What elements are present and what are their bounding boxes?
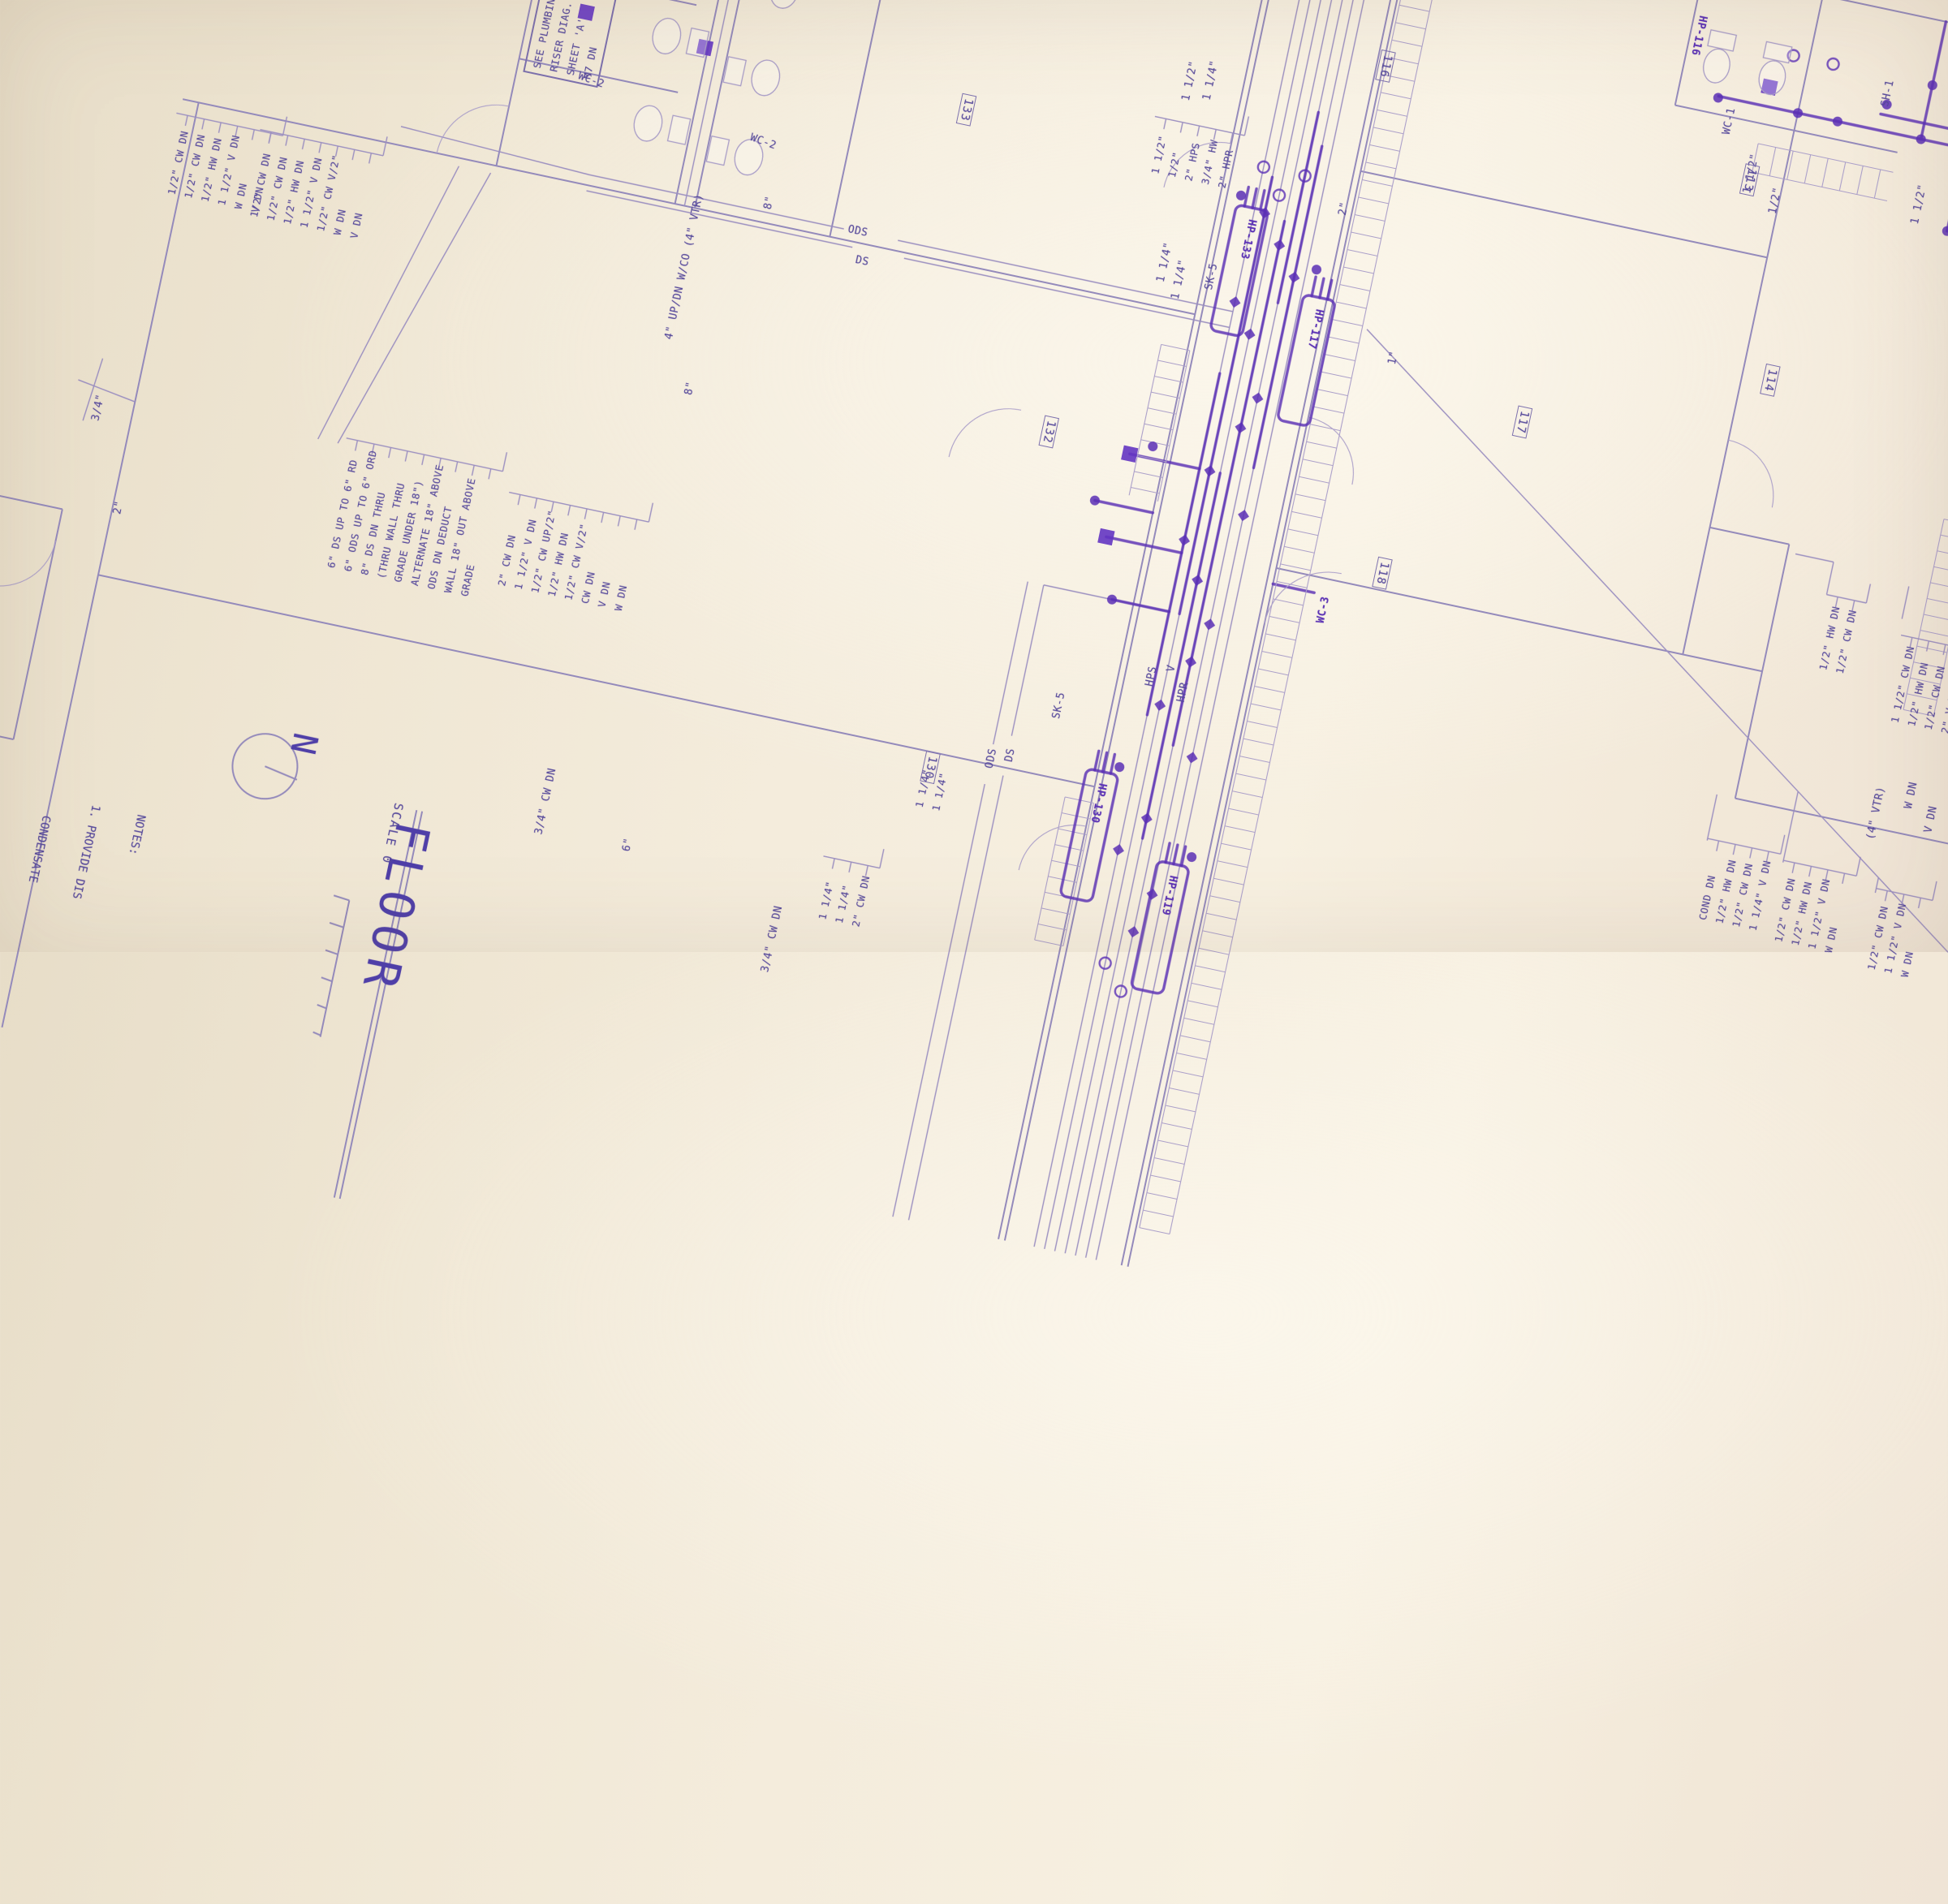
hatch-rail (1157, 351, 1190, 502)
pipe-label: HPR (1175, 681, 1192, 704)
wall-line (1276, 568, 1762, 671)
hatch-rung (1166, 1105, 1196, 1112)
fitting-dot-icon (1089, 495, 1101, 506)
pipe-label: 3/4" (90, 393, 108, 422)
hp-unit-label: HP-119 (1159, 874, 1179, 916)
valve-icon (1179, 535, 1190, 546)
valve-icon (1259, 207, 1270, 218)
valve-icon (1244, 329, 1256, 340)
leader-comb (1877, 889, 1933, 901)
hatch-rung (1206, 913, 1236, 920)
wall-line (14, 509, 62, 739)
wall-line (1735, 545, 1790, 799)
hatch-rung (1359, 197, 1389, 204)
hatch-rung (1140, 1228, 1170, 1234)
valve-icon (1252, 393, 1264, 404)
leader-tick (849, 862, 851, 872)
fitting-dot-icon (1832, 116, 1843, 127)
hatch-rung (1151, 1175, 1181, 1182)
hatch-rung (1924, 614, 1948, 621)
plan-linework (0, 0, 1948, 1904)
fitting-dot-icon (1713, 92, 1724, 103)
wall-line (98, 575, 1095, 786)
hatch-rung (1347, 250, 1377, 256)
hatch-rung (1343, 267, 1373, 274)
leader-line (1244, 116, 1248, 135)
wall-line (1675, 106, 1898, 153)
hatch-rung (1134, 472, 1162, 477)
pipe-label: 8" (683, 381, 697, 396)
hatch-rung (1144, 424, 1173, 429)
riser-icon (1098, 956, 1112, 970)
hatch-rung (1199, 948, 1229, 954)
blueprint-photo: { "title_block": { "title": "FLOOR", "sc… (0, 0, 1948, 952)
fitting-dot-icon (1927, 80, 1938, 91)
riser-icon (1273, 188, 1286, 202)
hatch-rung (1131, 487, 1159, 493)
hatch-rung (1173, 1070, 1203, 1077)
marker-pipe (1173, 222, 1284, 746)
leader-comb (1826, 595, 1866, 603)
hatch-rung (1310, 424, 1340, 431)
fitting-dot-icon (1942, 226, 1948, 237)
marker-pipe (1278, 112, 1318, 303)
door-swing-arc (1019, 815, 1086, 882)
pipe-label: (4" VTR) (1864, 786, 1888, 841)
fitting-dot-icon (1186, 851, 1197, 863)
pipe-label: WC-1 (1721, 106, 1739, 136)
pipe-label: SK-5 (1050, 691, 1068, 720)
pipe-label: 1" (1386, 350, 1401, 365)
hatch-rung (1941, 535, 1948, 541)
marker-pipe (1130, 454, 1200, 468)
water-closet-icon (1756, 58, 1788, 97)
pipe-label: 2" (111, 500, 126, 515)
pipe-label-stack-R1: 1/2" HW DN1/2" CW DN (1814, 605, 1861, 675)
pipe-line (1795, 554, 1834, 562)
fitting-dot-icon (1311, 264, 1322, 275)
valve-icon (1192, 575, 1203, 586)
leader-line (282, 117, 287, 136)
general-notes: NOTES: 1. PROVIDE DIS CONDENSATE (0, 787, 179, 916)
pipe-label: 1/2" (1767, 186, 1785, 215)
marker-pipe (1881, 114, 1948, 191)
pipe-line (1783, 792, 1799, 863)
marker-pipe (1254, 146, 1322, 467)
wall-line (675, 0, 782, 204)
hatch-rung (1169, 1088, 1199, 1094)
hatch-rung (1251, 704, 1281, 710)
riser-icon (1298, 169, 1312, 183)
pipe-line (1875, 878, 1878, 894)
valve-icon (1187, 752, 1198, 764)
wall-line (1127, 0, 1451, 1267)
water-closet-icon (723, 57, 746, 86)
hp-unit-feed (1252, 189, 1256, 208)
hatch-rung (1258, 669, 1288, 675)
pipe-line (684, 0, 791, 206)
hp-unit-feed (1110, 755, 1114, 773)
leader-comb (823, 856, 879, 868)
pipe-line (893, 784, 985, 1217)
pipe-line (399, 127, 592, 175)
room-tag-133: 133 (956, 93, 977, 127)
pipe-label: V DN (1922, 805, 1940, 834)
pipe-line (587, 191, 853, 248)
hatch-rung (1151, 392, 1179, 398)
notes-line: 1. PROVIDE DIS (68, 803, 103, 900)
hatch-rung (1177, 1053, 1207, 1059)
hatch-rung (1874, 170, 1880, 198)
pipe-label-stack-BR2: 1/2" CW DN1/2" HW DN1 1/2" V DNW DN (1769, 870, 1851, 954)
leader-line (502, 452, 506, 471)
pipe-label: 1 1/2" (1909, 183, 1929, 226)
floor-drain-icon (1761, 79, 1778, 96)
leader-line (880, 849, 884, 868)
hatch-rung (1787, 151, 1793, 179)
titleblock-line (334, 895, 350, 900)
hp-unit-feed (1312, 277, 1316, 295)
pipe-label-stack-NB: SEE PLUMBINGRISER DIAG.SHEET 'A'M7 DN (523, 0, 616, 88)
floor-drain-icon (1097, 528, 1114, 545)
pipe-label: HPS (1144, 666, 1160, 688)
hatch-rung (1291, 511, 1321, 518)
hatch-rung (1321, 372, 1351, 378)
pipe-label: SK-5 (1203, 262, 1221, 291)
corridor-pipe (1086, 0, 1410, 1258)
pipe-label: V (1165, 664, 1178, 673)
door-swing-arc (437, 93, 509, 166)
hatch-rung (1299, 476, 1329, 483)
pipe-label: 8" (762, 195, 777, 210)
hatch-rung (1243, 739, 1274, 745)
hp-unit (1277, 295, 1335, 427)
valve-icon (1128, 926, 1140, 937)
water-closet-icon (706, 136, 729, 166)
fitting-dot-icon (1147, 441, 1158, 452)
titleblock-line (330, 923, 344, 928)
room-tag-132: 132 (1038, 416, 1059, 449)
wall-line (998, 0, 1322, 1239)
water-closet-icon (668, 115, 691, 144)
pipe-line (590, 174, 844, 229)
hatch-rung (1210, 896, 1240, 902)
water-closet-icon (631, 103, 665, 144)
leader-line (1856, 857, 1860, 876)
hatch-rung (1839, 162, 1845, 191)
pipe-label: 1 1/4" (1155, 241, 1175, 283)
hatch-rung (1307, 442, 1337, 448)
pipe-line (1011, 585, 1044, 736)
hatch-rung (1314, 407, 1344, 413)
leader-tick (1213, 129, 1216, 140)
hatch-rung (1045, 892, 1073, 898)
hp-unit-feed (1166, 843, 1170, 862)
floor-drain-icon (1121, 446, 1138, 463)
hatch-rung (1392, 40, 1422, 46)
titleblock-line (317, 1005, 326, 1008)
hatch-rung (1373, 127, 1403, 134)
valve-icon (1289, 272, 1300, 283)
floor-plan-sheet: FLOOR SCALE 0 N NOTES: 1. PROVIDE DIS CO… (0, 0, 1948, 1144)
wall-line (695, 0, 802, 208)
hatch-rung (1284, 546, 1314, 553)
water-closet-icon (767, 0, 801, 11)
hatch-rung (1381, 93, 1411, 99)
room-tag-114: 114 (1760, 364, 1781, 397)
pipe-label-stack-M1: 6" DS UP TO 6" RD6" ODS UP TO 6" ORD8" D… (322, 445, 498, 597)
hatch-rail (1063, 803, 1093, 946)
wall-line (1122, 0, 1446, 1265)
hatch-rung (1158, 1140, 1188, 1147)
hatch-rung (1062, 813, 1090, 819)
hatch-rung (1187, 1001, 1217, 1007)
riser-icon (1257, 161, 1271, 174)
hatch-rung (1265, 634, 1295, 640)
hp-unit-feed (1174, 845, 1178, 864)
pipe-label-stack-M2: 2" CW DN1 1/2" V DN1/2" CW UP/2"1/2" HW … (493, 502, 644, 613)
pipe-label-stack-BR1: COND DN1/2" HW DN1/2" CW DN1 1/4" V DN (1694, 848, 1776, 933)
wall-line (1005, 0, 1329, 1240)
hatch-rung (1239, 756, 1269, 763)
hatch-rung (1157, 360, 1186, 366)
door-swing-arc (0, 529, 56, 597)
hatch-rail (1129, 344, 1161, 495)
fitting-dot-icon (1235, 190, 1247, 201)
pipe-label: HP-116 (1688, 15, 1709, 57)
hp-unit-feed (1244, 187, 1248, 206)
room-tag-116: 116 (1375, 50, 1396, 83)
hatch-rung (1161, 344, 1190, 350)
water-closet-icon (649, 15, 683, 56)
hatch-rail (1140, 0, 1418, 1228)
hatch-rung (1930, 583, 1948, 589)
marker-pipe (1921, 22, 1946, 140)
floor-drain-icon (696, 39, 713, 56)
pipe-line (1707, 795, 1717, 841)
hatch-rung (1933, 566, 1948, 573)
hatch-rung (1255, 687, 1285, 693)
hp-unit (1131, 860, 1189, 994)
valve-icon (1147, 889, 1158, 900)
hatch-rung (1138, 455, 1166, 461)
pipe-label: W DN (1903, 781, 1920, 810)
valve-icon (1204, 618, 1215, 630)
water-closet-icon (748, 58, 782, 98)
wall-line (1683, 0, 1831, 654)
pipe-label: 4" UP/DN W/CO (4" VTR) (663, 192, 706, 340)
hatch-rung (1822, 158, 1828, 187)
hatch-rung (1277, 581, 1307, 588)
hp-unit-feed (1261, 191, 1265, 209)
wall-line (1360, 171, 1767, 257)
pipe-label: WC-2 (748, 131, 778, 152)
hatch-rung (1143, 1210, 1173, 1217)
marker-pipe (1112, 600, 1169, 612)
pipe-label: 2" (1337, 201, 1351, 217)
marker-pipe (1143, 473, 1221, 838)
leader-tick (1180, 123, 1183, 133)
pipe-label: ODS (847, 223, 869, 239)
hatch-rung (1141, 440, 1170, 446)
hatch-rung (1051, 860, 1080, 866)
hatch-rung (1041, 908, 1070, 914)
valve-icon (1274, 239, 1285, 251)
hatch-rung (1203, 931, 1233, 937)
corridor-pipe (1045, 0, 1368, 1249)
pipe-line (1902, 586, 1909, 618)
door-swing-arc (1717, 440, 1784, 507)
valve-icon (1235, 422, 1247, 433)
fitting-dot-icon (1792, 107, 1804, 118)
pipe-label: SH-1 (1879, 79, 1897, 108)
notes-line: CONDENSATE (23, 794, 58, 890)
door-swing-arc (1296, 417, 1364, 485)
hatch-rung (1362, 179, 1392, 186)
hp-unit-feed (1095, 751, 1099, 769)
hp-unit (1060, 769, 1118, 902)
riser-icon (1786, 49, 1800, 62)
hatch-rung (1184, 1018, 1214, 1024)
hatch-rung (1269, 616, 1299, 622)
titleblock-line (325, 950, 338, 954)
door-swing-arc (949, 398, 1021, 470)
water-closet-icon (1708, 30, 1736, 51)
notes-line: NOTES: (113, 813, 148, 910)
hatch-rung (1229, 808, 1259, 815)
hp-unit-feed (1182, 846, 1186, 865)
hatch-rung (1336, 302, 1366, 308)
hatch-rung (1236, 773, 1266, 780)
titleblock-line (312, 1032, 321, 1036)
hatch-rung (1317, 390, 1347, 396)
hatch-rung (1058, 829, 1087, 834)
pipe-label: WC-3 (1315, 596, 1333, 625)
corridor-pipe (1096, 0, 1420, 1260)
valve-icon (1230, 296, 1241, 308)
leader-tick (832, 859, 834, 869)
pipe-label: WC-2 (576, 70, 606, 90)
hatch-rung (1180, 1036, 1210, 1042)
hatch-rung (1038, 924, 1067, 929)
pipe-line (909, 776, 1003, 1221)
valve-icon (1141, 813, 1153, 825)
pipe-line (1044, 585, 1170, 612)
hatch-rung (1325, 355, 1355, 361)
hatch-rung (1355, 215, 1385, 222)
marker-pipe (1147, 373, 1219, 715)
fitting-dot-icon (1106, 594, 1118, 605)
leader-tick (1164, 118, 1166, 129)
pipe-label-stack-B2: 1 1/4"1 1/4"2" CW DN (813, 867, 874, 928)
hatch-rung (1333, 320, 1363, 326)
pipe-label-stack-L2: 1/2" CW DN1/2" CW DN1/2" HW DN1 1/2" V D… (245, 139, 378, 240)
hatch-rung (1154, 1158, 1184, 1165)
leader-line (649, 503, 653, 522)
pipe-label-stack-T1: 1 1/2"1/2"2" HPS3/4" HW2" HPR (1146, 127, 1239, 190)
water-closet-icon (1700, 46, 1733, 85)
hatch-rung (1035, 940, 1063, 946)
room-tag-118: 118 (1372, 557, 1393, 590)
water-closet-icon (686, 28, 709, 58)
hatch-rung (1857, 166, 1863, 194)
hatch-rung (1192, 983, 1222, 989)
hatch-rung (1048, 877, 1076, 882)
wall-line (1416, 0, 1948, 88)
pipe-label: 6" (621, 837, 636, 852)
hatch-rung (1288, 529, 1318, 536)
hatch-rung (1055, 845, 1084, 851)
pipe-label: 1 1/4" (1170, 258, 1190, 300)
leader-tick (1197, 126, 1200, 136)
pipe-label: DS (1003, 747, 1018, 763)
pipe-label-stack-R2: 1 1/2" CW DN1/2" HW DN1/2" CW DN2" V UP/… (1886, 644, 1948, 739)
fitting-dot-icon (1916, 133, 1927, 144)
wall-line (0, 440, 62, 509)
hatch-rung (1369, 144, 1399, 151)
room-tag-113: 113 (1739, 163, 1761, 196)
pipe-label: 3/4" CW DN (533, 767, 559, 836)
marker-pipe (1095, 501, 1153, 513)
wall-line (830, 0, 937, 237)
valve-icon (1154, 700, 1166, 711)
hatch-rung (1225, 826, 1255, 833)
hatch-rail (1758, 144, 1893, 172)
leader-line (383, 136, 387, 155)
wall-line (0, 670, 14, 739)
hatch-rung (1154, 377, 1183, 382)
valve-icon (1238, 510, 1249, 521)
hatch-rung (1395, 23, 1425, 29)
hatch-rung (1281, 564, 1311, 571)
marker-pipe (1106, 537, 1182, 554)
hp-unit-label: HP-117 (1305, 308, 1325, 350)
hatch-rung (1195, 966, 1225, 972)
hatch-rung (1920, 631, 1948, 637)
pipe-label: 1 1/2" (1180, 60, 1200, 102)
hatch-rung (1329, 337, 1359, 343)
pipe-label: DS (854, 254, 869, 269)
water-closet-icon (1763, 41, 1791, 62)
leader-line (1866, 584, 1870, 603)
hatch-rung (1340, 285, 1370, 291)
hatch-rung (1366, 162, 1396, 169)
hatch-rung (1295, 494, 1325, 501)
pipe-line (993, 582, 1028, 745)
hatch-rung (1273, 599, 1303, 605)
hatch-rung (1377, 110, 1407, 116)
titleblock-line (321, 900, 350, 1036)
titleblock-line (321, 977, 332, 981)
hp-unit-feed (1328, 280, 1332, 299)
wall-line (1710, 528, 1790, 545)
hatch-rung (1944, 519, 1948, 526)
marker-pipe (1273, 584, 1314, 592)
hatch-rung (1927, 598, 1948, 605)
room-tag-117: 117 (1512, 406, 1533, 439)
fitting-dot-icon (1114, 761, 1125, 773)
hatch-rung (1303, 459, 1333, 466)
hatch-rung (1769, 148, 1775, 176)
corridor-pipe (1055, 0, 1379, 1251)
north-label: N (282, 730, 325, 758)
pipe-line (1826, 562, 1834, 595)
hatch-rail (1035, 797, 1065, 940)
marker-pipe (1179, 177, 1272, 614)
titleblock-line (264, 766, 299, 780)
corridor-pipe (1034, 0, 1358, 1247)
hatch-rung (1221, 843, 1251, 850)
